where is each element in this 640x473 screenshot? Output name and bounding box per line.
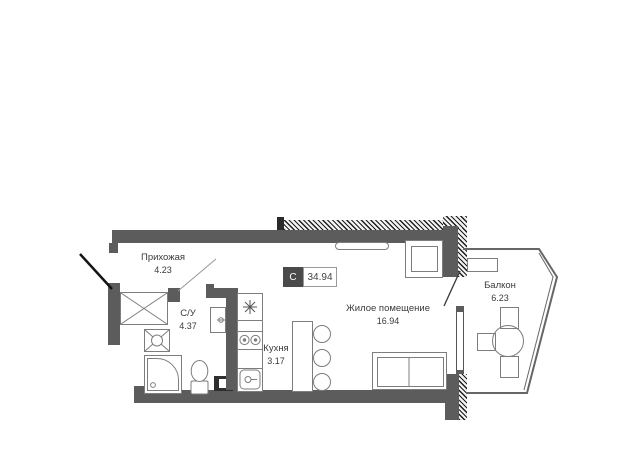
wall-left [108,283,120,345]
bar-counter [292,321,313,392]
wall-top-notch [109,243,118,253]
wall-block-bottom-right [445,374,459,420]
hatch-corner-right [458,228,467,277]
sofa-bed-seat [377,357,444,387]
room-label-kitchen: Кухня 3.17 [263,343,288,367]
room-area: 16.94 [346,315,430,327]
room-name: Прихожая [141,252,185,265]
room-name: Кухня [263,343,288,356]
wall-bottom-cap-left [134,386,144,403]
wardrobe [120,292,168,325]
hatch-wall-top [279,220,443,230]
radiator [335,242,389,250]
washbasin [210,307,226,333]
room-area: 3.17 [263,355,288,367]
balcony-chair-bottom [500,356,519,378]
badge-section-letter: C [283,267,303,287]
wall-top [112,230,448,243]
room-area: 6.23 [484,292,516,304]
washing-machine [144,329,170,352]
room-label-bathroom: С/У 4.37 [179,308,197,332]
hatch-wall-top-cap [277,217,284,230]
balcony-window-cap-top [456,306,464,312]
room-label-hallway: Прихожая 4.23 [141,252,185,276]
toilet-icon [191,361,208,395]
balcony-table-circle [493,326,524,357]
room-area: 4.23 [141,264,185,276]
wall-corner-right [443,226,458,277]
balcony-chair-left [477,333,496,351]
kitchen-unit [237,293,263,392]
room-label-living: Жилое помещение 16.94 [346,303,430,327]
floor-plan: Прихожая 4.23 С/У 4.37 Кухня 3.17 Жилое … [0,0,640,473]
room-name: Жилое помещение [346,303,430,316]
room-name: Балкон [484,280,516,293]
balcony-window [456,312,464,374]
bar-stools-icon [314,326,331,391]
wall-bathroom-stub [168,288,180,302]
balcony-outline-inner [524,253,553,390]
room-name: С/У [179,308,197,321]
balcony-chair-top [500,307,519,329]
hatch-bottom-right [459,374,467,420]
badge-total-area: 34.94 [303,267,337,287]
wall-bathroom-top-cap [206,284,214,298]
armchair-seat [411,246,438,272]
room-label-balcony: Балкон 6.23 [484,280,516,304]
balcony-shelf [467,258,498,272]
total-area-badge: C 34.94 [283,267,337,287]
room-area: 4.37 [179,320,197,332]
